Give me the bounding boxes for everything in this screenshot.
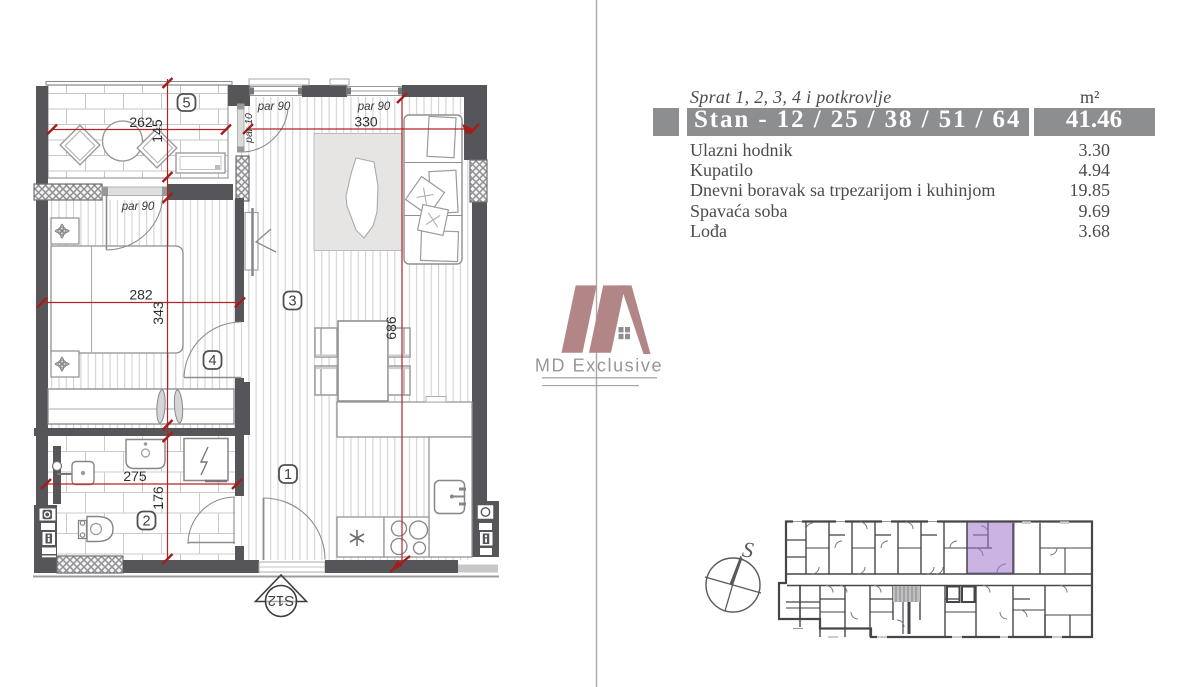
svg-text:2: 2 (142, 514, 150, 530)
svg-text:686: 686 (383, 316, 399, 340)
svg-text:par 90: par 90 (357, 101, 391, 113)
svg-text:3: 3 (288, 294, 296, 310)
svg-text:275: 275 (123, 468, 147, 484)
svg-text:176: 176 (150, 486, 166, 510)
svg-text:S: S (741, 536, 755, 562)
svg-text:4: 4 (208, 353, 216, 369)
svg-text:par 90: par 90 (121, 201, 155, 213)
svg-text:1: 1 (284, 467, 292, 483)
svg-text:145: 145 (149, 119, 165, 143)
svg-text:282: 282 (129, 287, 153, 303)
svg-text:S12: S12 (268, 592, 295, 609)
svg-text:330: 330 (354, 114, 378, 130)
svg-text:MD Exclusive: MD Exclusive (535, 356, 663, 376)
svg-text:par 10: par 10 (243, 113, 255, 144)
svg-text:par 90: par 90 (257, 101, 291, 113)
svg-text:5: 5 (182, 96, 190, 112)
svg-text:343: 343 (150, 301, 166, 325)
